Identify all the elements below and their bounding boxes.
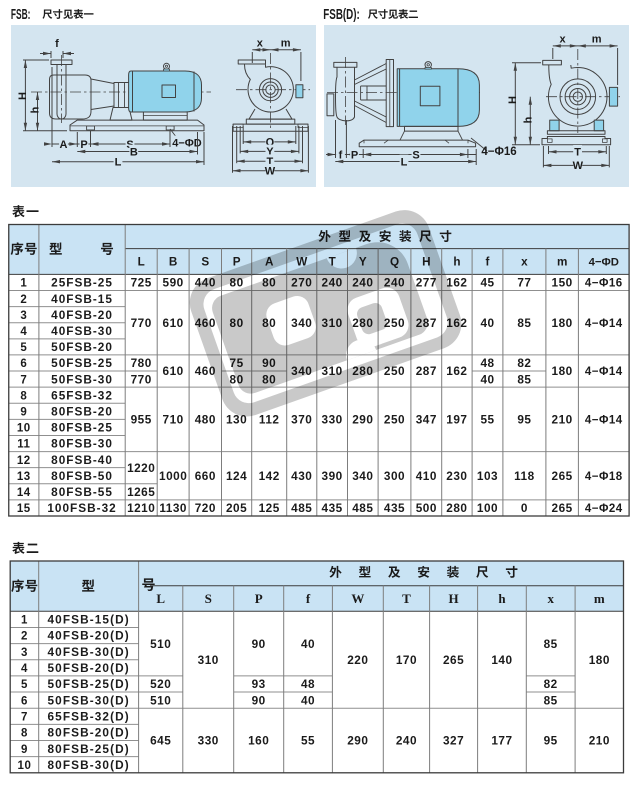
svg-text:210: 210 — [589, 734, 610, 748]
svg-text:40: 40 — [301, 637, 315, 651]
svg-text:180: 180 — [552, 364, 573, 378]
svg-text:1210: 1210 — [127, 501, 155, 515]
svg-text:S: S — [201, 255, 209, 268]
svg-text:347: 347 — [416, 413, 437, 427]
svg-text:150: 150 — [552, 276, 573, 290]
svg-text:4−Φ16: 4−Φ16 — [585, 278, 623, 290]
svg-text:90: 90 — [252, 693, 266, 707]
svg-text:90: 90 — [252, 637, 266, 651]
svg-text:485: 485 — [352, 501, 373, 515]
svg-text:500: 500 — [416, 501, 437, 515]
svg-text:590: 590 — [163, 276, 184, 290]
svg-text:13: 13 — [17, 471, 31, 483]
svg-text:4−Φ16: 4−Φ16 — [481, 146, 516, 158]
svg-text:55: 55 — [301, 734, 315, 748]
svg-text:h: h — [498, 591, 506, 606]
svg-text:1000: 1000 — [159, 469, 187, 483]
svg-text:W: W — [573, 160, 584, 172]
svg-text:x: x — [257, 38, 264, 50]
svg-text:0: 0 — [521, 501, 528, 515]
svg-text:x: x — [547, 591, 554, 606]
svg-text:280: 280 — [446, 501, 467, 515]
svg-text:48: 48 — [301, 677, 315, 691]
svg-text:55: 55 — [480, 413, 494, 427]
svg-text:H: H — [17, 92, 29, 100]
svg-text:P: P — [351, 149, 358, 161]
svg-text:230: 230 — [446, 469, 467, 483]
svg-text:520: 520 — [150, 677, 171, 691]
svg-text:340: 340 — [352, 469, 373, 483]
svg-text:40FSB-15(D): 40FSB-15(D) — [48, 613, 130, 627]
svg-text:50FSB-25(D): 50FSB-25(D) — [48, 677, 130, 691]
svg-text:162: 162 — [446, 364, 467, 378]
svg-text:330: 330 — [322, 413, 343, 427]
svg-text:240: 240 — [396, 734, 417, 748]
svg-text:x: x — [521, 255, 528, 268]
svg-text:4−Φ14: 4−Φ14 — [585, 318, 623, 330]
svg-text:9: 9 — [21, 744, 28, 756]
svg-text:1265: 1265 — [127, 485, 155, 499]
svg-text:11: 11 — [17, 439, 30, 451]
svg-text:3: 3 — [21, 647, 28, 659]
svg-text:4−Φ24: 4−Φ24 — [585, 503, 623, 515]
svg-text:124: 124 — [226, 469, 247, 483]
svg-text:H: H — [449, 591, 459, 606]
svg-text:82: 82 — [544, 677, 558, 691]
svg-text:48: 48 — [480, 356, 494, 370]
svg-text:510: 510 — [150, 693, 171, 707]
svg-text:710: 710 — [163, 413, 184, 427]
svg-text:f: f — [306, 591, 311, 606]
svg-text:112: 112 — [259, 413, 280, 427]
svg-text:210: 210 — [552, 413, 573, 427]
svg-text:177: 177 — [491, 734, 512, 748]
svg-text:4−Φ18: 4−Φ18 — [585, 471, 623, 483]
svg-text:2: 2 — [20, 294, 27, 306]
svg-text:5: 5 — [21, 679, 28, 691]
svg-text:8: 8 — [20, 390, 27, 402]
svg-text:P: P — [233, 255, 241, 268]
svg-text:h: h — [30, 106, 42, 113]
svg-text:310: 310 — [198, 653, 219, 667]
svg-text:P: P — [80, 139, 87, 151]
svg-text:9: 9 — [20, 407, 27, 419]
svg-text:180: 180 — [589, 653, 610, 667]
svg-text:1: 1 — [20, 278, 27, 290]
svg-text:f: f — [339, 149, 343, 161]
svg-text:330: 330 — [198, 734, 219, 748]
svg-text:15: 15 — [17, 503, 31, 515]
svg-text:85: 85 — [544, 693, 558, 707]
svg-text:205: 205 — [226, 501, 247, 515]
svg-text:50FSB-20: 50FSB-20 — [51, 340, 113, 354]
svg-text:4−Φ14: 4−Φ14 — [585, 415, 623, 427]
svg-text:265: 265 — [552, 469, 573, 483]
svg-text:725: 725 — [131, 276, 152, 290]
svg-text:95: 95 — [517, 413, 531, 427]
svg-text:65FSB-32: 65FSB-32 — [51, 388, 113, 402]
svg-text:180: 180 — [552, 316, 573, 330]
svg-text:B: B — [169, 255, 177, 268]
svg-text:170: 170 — [396, 653, 417, 667]
svg-text:2: 2 — [21, 631, 28, 643]
svg-text:H: H — [507, 96, 519, 104]
svg-text:250: 250 — [384, 413, 405, 427]
svg-text:327: 327 — [443, 734, 464, 748]
svg-text:L: L — [156, 591, 165, 606]
svg-text:FSB:: FSB: — [11, 7, 31, 23]
svg-text:197: 197 — [446, 413, 467, 427]
svg-text:265: 265 — [552, 501, 573, 515]
svg-text:m: m — [594, 591, 605, 606]
svg-text:50FSB-30: 50FSB-30 — [51, 372, 113, 386]
svg-text:4: 4 — [21, 663, 28, 675]
svg-text:10: 10 — [18, 760, 32, 772]
svg-text:780: 780 — [131, 356, 152, 370]
svg-text:W: W — [265, 166, 276, 178]
svg-text:7: 7 — [21, 711, 28, 723]
svg-text:x: x — [560, 34, 567, 46]
svg-text:S: S — [412, 149, 419, 161]
svg-text:80FSB-40: 80FSB-40 — [51, 453, 113, 467]
svg-text:40FSB-20(D): 40FSB-20(D) — [48, 629, 130, 643]
svg-text:h: h — [453, 255, 460, 268]
svg-text:L: L — [401, 156, 408, 168]
svg-text:118: 118 — [514, 469, 535, 483]
svg-text:80FSB-20: 80FSB-20 — [51, 405, 113, 419]
svg-text:435: 435 — [322, 501, 343, 515]
svg-text:4−Φ14: 4−Φ14 — [585, 366, 623, 378]
svg-text:80FSB-55: 80FSB-55 — [51, 485, 113, 499]
svg-text:77: 77 — [517, 276, 531, 290]
svg-text:82: 82 — [517, 356, 531, 370]
svg-text:40FSB-30(D): 40FSB-30(D) — [48, 645, 130, 659]
svg-text:f: f — [55, 38, 59, 50]
svg-text:3: 3 — [20, 310, 27, 322]
svg-text:12: 12 — [17, 455, 31, 467]
svg-text:485: 485 — [291, 501, 312, 515]
svg-text:f: f — [486, 255, 490, 268]
svg-text:265: 265 — [443, 653, 464, 667]
svg-text:1130: 1130 — [159, 501, 187, 515]
svg-text:L: L — [138, 255, 145, 268]
svg-text:480: 480 — [195, 413, 216, 427]
svg-text:80FSB-25: 80FSB-25 — [51, 421, 113, 435]
svg-text:125: 125 — [259, 501, 280, 515]
svg-text:290: 290 — [347, 734, 368, 748]
svg-text:50FSB-20(D): 50FSB-20(D) — [48, 661, 130, 675]
svg-text:770: 770 — [131, 372, 152, 386]
svg-text:m: m — [557, 255, 567, 268]
svg-text:85: 85 — [517, 372, 531, 386]
svg-text:220: 220 — [347, 653, 368, 667]
svg-text:4−ΦD: 4−ΦD — [589, 256, 619, 268]
svg-text:160: 160 — [248, 734, 269, 748]
svg-text:100: 100 — [477, 501, 498, 515]
svg-text:1: 1 — [21, 615, 28, 627]
svg-text:h: h — [523, 116, 535, 123]
svg-text:103: 103 — [477, 469, 498, 483]
svg-text:390: 390 — [322, 469, 343, 483]
svg-text:40FSB-20: 40FSB-20 — [51, 308, 113, 322]
svg-text:410: 410 — [416, 469, 437, 483]
svg-text:720: 720 — [195, 501, 216, 515]
svg-text:40: 40 — [480, 372, 494, 386]
svg-text:40: 40 — [301, 693, 315, 707]
svg-text:25FSB-25: 25FSB-25 — [51, 276, 113, 290]
svg-text:300: 300 — [384, 469, 405, 483]
svg-text:80FSB-25(D): 80FSB-25(D) — [48, 742, 130, 756]
svg-text:770: 770 — [131, 316, 152, 330]
svg-text:L: L — [115, 157, 122, 169]
svg-text:m: m — [592, 34, 602, 46]
svg-text:8: 8 — [21, 728, 28, 740]
svg-text:85: 85 — [544, 637, 558, 651]
svg-text:142: 142 — [259, 469, 280, 483]
svg-text:287: 287 — [416, 364, 437, 378]
svg-text:T: T — [574, 147, 581, 159]
svg-text:340: 340 — [291, 316, 312, 330]
svg-text:80FSB-30: 80FSB-30 — [51, 437, 113, 451]
svg-text:80FSB-20(D): 80FSB-20(D) — [48, 726, 130, 740]
svg-text:A: A — [60, 139, 68, 151]
svg-text:93: 93 — [252, 677, 266, 691]
svg-text:P: P — [255, 591, 263, 606]
svg-text:430: 430 — [291, 469, 312, 483]
svg-text:645: 645 — [150, 734, 171, 748]
svg-text:1220: 1220 — [127, 461, 155, 475]
svg-text:m: m — [281, 38, 291, 50]
svg-text:40FSB-15: 40FSB-15 — [51, 292, 113, 306]
svg-text:140: 140 — [491, 653, 512, 667]
svg-text:6: 6 — [20, 358, 27, 370]
svg-text:80FSB-50: 80FSB-50 — [51, 469, 113, 483]
svg-text:40FSB-30: 40FSB-30 — [51, 324, 113, 338]
svg-text:95: 95 — [544, 734, 558, 748]
svg-text:955: 955 — [131, 413, 152, 427]
svg-text:B: B — [130, 146, 138, 158]
svg-text:370: 370 — [291, 413, 312, 427]
svg-text:660: 660 — [195, 469, 216, 483]
svg-text:10: 10 — [17, 423, 31, 435]
svg-text:FSB(D):: FSB(D): — [323, 7, 360, 23]
svg-text:50FSB-25: 50FSB-25 — [51, 356, 113, 370]
svg-text:50FSB-30(D): 50FSB-30(D) — [48, 693, 130, 707]
svg-text:40: 40 — [480, 316, 494, 330]
svg-text:250: 250 — [384, 316, 405, 330]
svg-text:7: 7 — [20, 374, 27, 386]
svg-text:510: 510 — [150, 637, 171, 651]
svg-text:85: 85 — [517, 316, 531, 330]
svg-text:S: S — [205, 591, 212, 606]
svg-text:W: W — [351, 591, 364, 606]
svg-text:6: 6 — [21, 695, 28, 707]
svg-text:65FSB-32(D): 65FSB-32(D) — [48, 709, 130, 723]
svg-text:610: 610 — [163, 316, 184, 330]
svg-text:5: 5 — [20, 342, 27, 354]
svg-text:100FSB-32: 100FSB-32 — [47, 501, 116, 515]
svg-text:80FSB-30(D): 80FSB-30(D) — [48, 758, 130, 772]
svg-text:290: 290 — [352, 413, 373, 427]
svg-text:14: 14 — [17, 487, 31, 499]
svg-text:610: 610 — [163, 364, 184, 378]
svg-text:45: 45 — [480, 276, 494, 290]
svg-text:4: 4 — [20, 326, 27, 338]
svg-text:T: T — [402, 591, 411, 606]
svg-text:435: 435 — [384, 501, 405, 515]
